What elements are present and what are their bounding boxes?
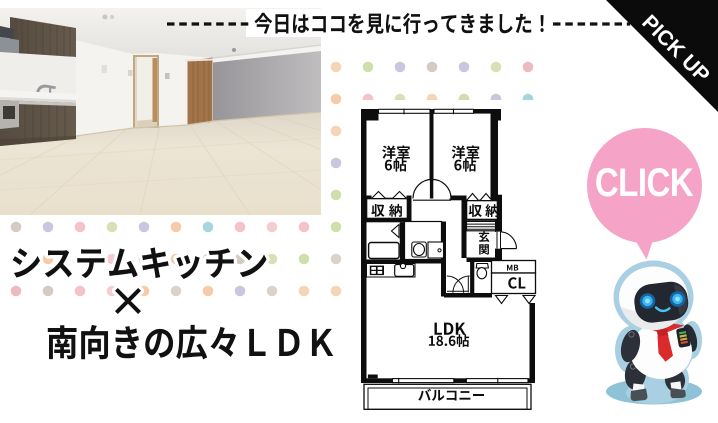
svg-text:CLICK: CLICK: [595, 160, 694, 205]
